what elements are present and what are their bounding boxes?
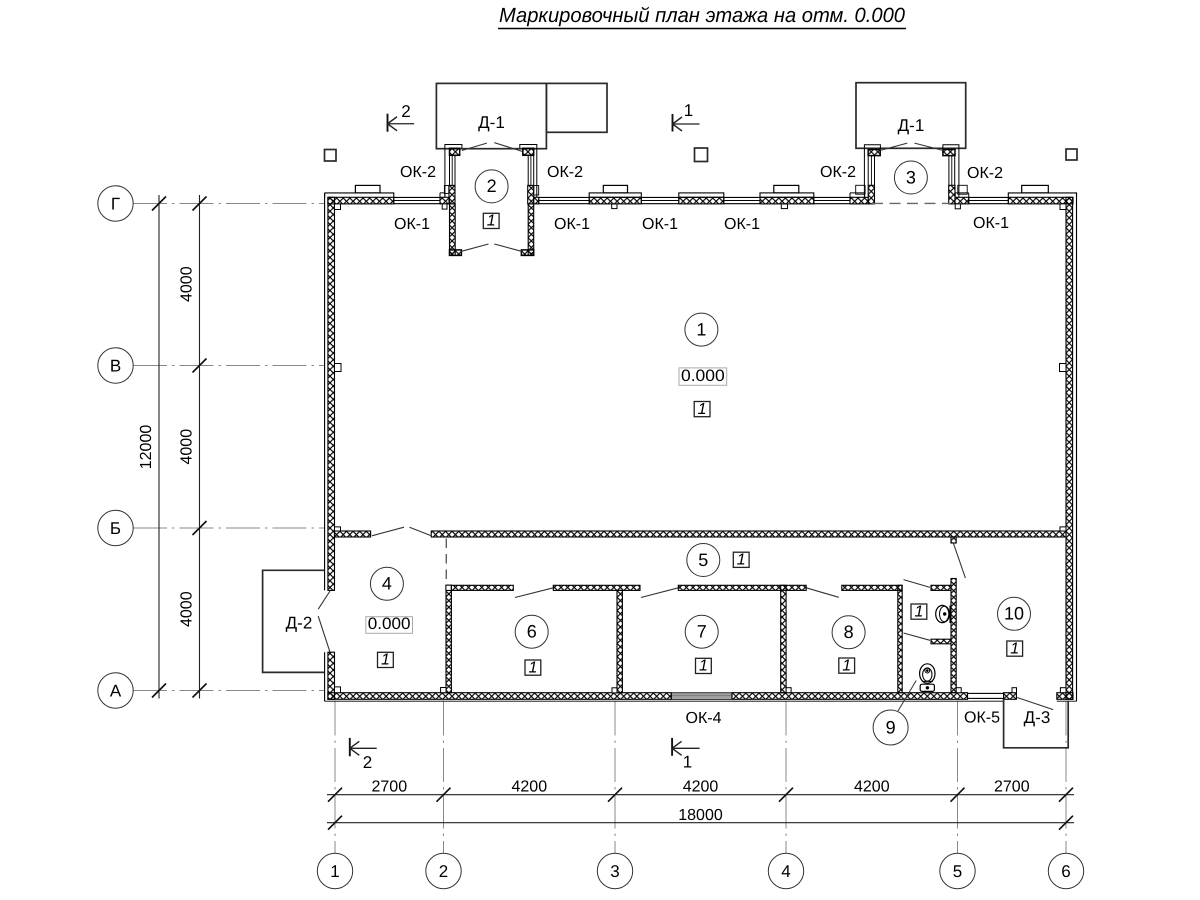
svg-text:12000: 12000 [138,425,155,470]
svg-text:1: 1 [914,603,923,620]
svg-text:1: 1 [842,657,851,674]
svg-text:8: 8 [844,622,854,642]
svg-text:4000: 4000 [179,429,196,465]
svg-text:2700: 2700 [372,779,408,796]
svg-text:Д-2: Д-2 [286,614,313,633]
svg-text:6: 6 [527,622,537,642]
svg-text:10: 10 [1004,604,1024,624]
svg-text:В: В [110,357,121,376]
svg-text:1: 1 [684,101,693,120]
svg-text:18000: 18000 [678,807,723,824]
svg-text:6: 6 [1061,862,1070,881]
svg-text:1: 1 [737,552,746,569]
svg-text:Д-1: Д-1 [898,116,925,135]
svg-text:1: 1 [683,753,692,772]
svg-text:ОК-1: ОК-1 [394,216,430,233]
svg-text:Д-3: Д-3 [1024,708,1051,727]
svg-text:5: 5 [698,550,708,570]
svg-text:4: 4 [382,574,392,594]
svg-text:0.000: 0.000 [368,615,411,633]
svg-text:5: 5 [953,862,962,881]
svg-text:2700: 2700 [994,779,1030,796]
svg-text:2: 2 [401,102,410,121]
svg-text:1: 1 [381,652,390,669]
svg-text:ОК-1: ОК-1 [642,216,678,233]
svg-text:1: 1 [696,319,706,339]
svg-text:9: 9 [886,717,896,737]
svg-text:3: 3 [906,167,916,187]
svg-text:2: 2 [363,753,372,772]
svg-text:ОК-5: ОК-5 [964,710,1000,727]
svg-text:1: 1 [698,401,707,418]
svg-text:1: 1 [487,213,496,230]
svg-text:1: 1 [330,862,339,881]
svg-text:Б: Б [110,519,121,538]
svg-text:ОК-1: ОК-1 [554,216,590,233]
svg-text:1: 1 [1010,640,1019,657]
svg-text:А: А [110,682,122,701]
svg-text:Маркировочный план этажа на от: Маркировочный план этажа на отм. 0.000 [499,4,906,27]
svg-text:0.000: 0.000 [681,367,725,385]
svg-text:4200: 4200 [854,779,890,796]
svg-text:ОК-2: ОК-2 [400,164,436,181]
svg-text:4: 4 [781,862,790,881]
svg-text:1: 1 [528,659,537,676]
svg-text:ОК-2: ОК-2 [820,164,856,181]
svg-text:4200: 4200 [512,779,548,796]
svg-text:3: 3 [610,862,619,881]
svg-text:Г: Г [111,195,120,214]
svg-text:4200: 4200 [683,779,719,796]
svg-text:4000: 4000 [179,266,196,302]
svg-text:1: 1 [699,658,708,675]
svg-text:ОК-1: ОК-1 [724,216,760,233]
svg-text:7: 7 [697,622,707,642]
svg-text:ОК-1: ОК-1 [973,215,1009,232]
svg-text:Д-1: Д-1 [478,113,505,132]
svg-text:ОК-4: ОК-4 [686,710,722,727]
svg-text:2: 2 [487,176,497,196]
svg-text:ОК-2: ОК-2 [547,164,583,181]
svg-text:2: 2 [439,862,448,881]
svg-text:4000: 4000 [179,591,196,627]
svg-text:ОК-2: ОК-2 [967,165,1003,182]
